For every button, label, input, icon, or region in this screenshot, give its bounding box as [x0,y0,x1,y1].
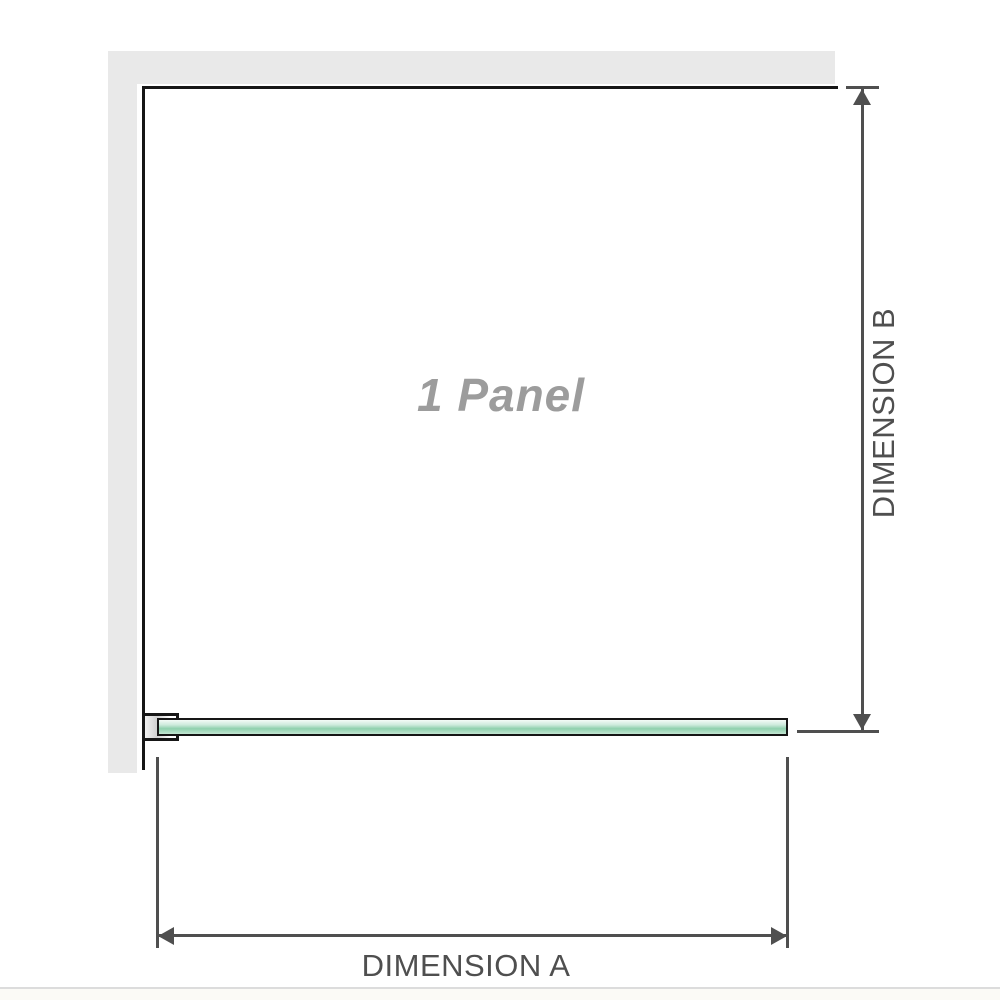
dimension-b-line [861,88,864,731]
wall-top-strip [108,51,835,84]
panel-area-left-border [142,86,145,770]
bottom-baseline [0,987,1000,989]
diagram-canvas: 1 Panel DIMENSION B DIMENSION A [0,0,1000,1000]
dimension-b-bottom-tick [797,730,879,733]
dimension-a-line [158,934,787,937]
panel-count-label: 1 Panel [417,368,585,422]
arrow-down-icon [853,714,871,730]
bottom-margin-area [0,989,1000,1000]
arrow-right-icon [771,927,787,945]
panel-area-top-border [142,86,838,89]
wall-left-strip [108,51,137,773]
arrow-left-icon [158,927,174,945]
dimension-b-label: DIMENSION B [866,308,902,518]
dimension-a-right-extension [786,757,789,948]
dimension-a-left-extension [156,757,159,948]
dimension-a-label: DIMENSION A [362,948,571,984]
glass-panel [157,718,788,736]
arrow-up-icon [853,89,871,105]
